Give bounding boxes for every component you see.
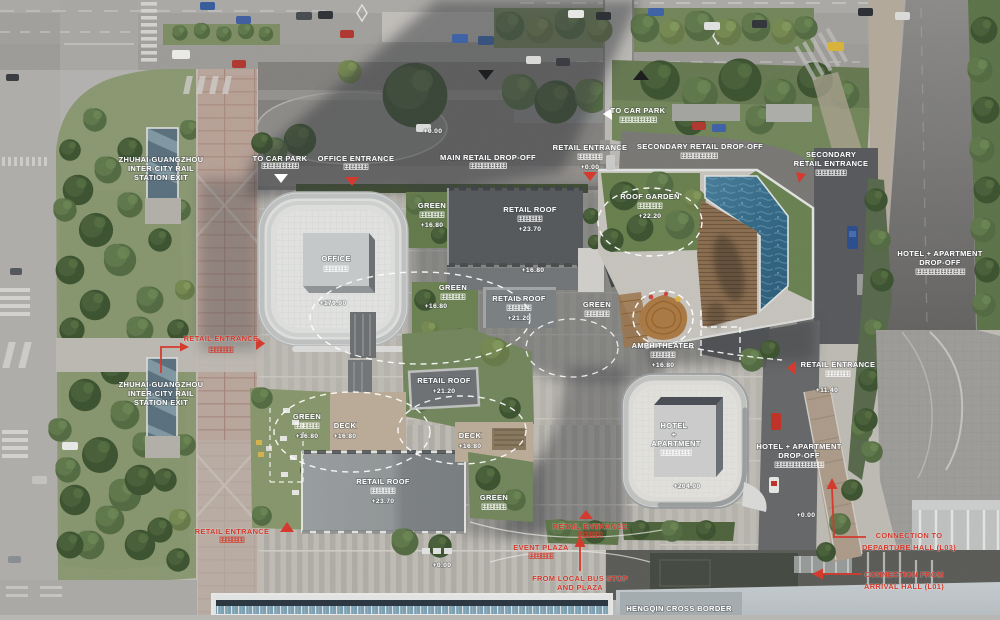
svg-text:+16.80: +16.80 xyxy=(425,303,448,310)
svg-text:RETAIL ROOF: RETAIL ROOF xyxy=(417,376,471,385)
svg-text:+11.40: +11.40 xyxy=(816,387,838,394)
svg-text:CONNECTION FROM: CONNECTION FROM xyxy=(864,570,943,579)
svg-text:TO CAR PARK: TO CAR PARK xyxy=(611,106,666,115)
svg-text:APARTMENT: APARTMENT xyxy=(651,439,700,448)
svg-text:AMPHITHEATER: AMPHITHEATER xyxy=(632,341,695,350)
svg-text:STATION EXIT: STATION EXIT xyxy=(134,173,188,182)
svg-text:HOTEL + APARTMENT: HOTEL + APARTMENT xyxy=(897,249,982,258)
svg-text:+16.80: +16.80 xyxy=(296,433,319,440)
svg-text:MAIN RETAIL DROP-OFF: MAIN RETAIL DROP-OFF xyxy=(440,153,536,162)
svg-text:+204.00: +204.00 xyxy=(674,483,701,490)
svg-text:RETAIL ENTRANCE: RETAIL ENTRANCE xyxy=(195,527,270,536)
svg-text:GREEN: GREEN xyxy=(439,283,467,292)
svg-text:+0.00: +0.00 xyxy=(424,128,443,135)
svg-text:CONNECTION TO: CONNECTION TO xyxy=(876,531,943,540)
svg-text:SECONDARY: SECONDARY xyxy=(806,150,856,159)
svg-text:GREEN: GREEN xyxy=(583,300,611,309)
svg-text:+0.00: +0.00 xyxy=(581,164,600,171)
svg-text:ARRIVAL HALL (L01): ARRIVAL HALL (L01) xyxy=(864,582,944,591)
svg-text:+16.80: +16.80 xyxy=(421,222,444,229)
svg-text:+22.20: +22.20 xyxy=(639,213,662,220)
svg-text:DROP-OFF: DROP-OFF xyxy=(919,258,961,267)
svg-text:+179.00: +179.00 xyxy=(320,300,347,307)
svg-text:ROOF GARDEN: ROOF GARDEN xyxy=(620,192,680,201)
svg-text:OFFICE ENTRANCE: OFFICE ENTRANCE xyxy=(318,154,395,163)
svg-text:+23.70: +23.70 xyxy=(372,498,395,505)
svg-text:GREEN: GREEN xyxy=(480,493,508,502)
svg-text:RETAIL ENTRANCE: RETAIL ENTRANCE xyxy=(184,334,259,343)
svg-text:OFFICE: OFFICE xyxy=(321,254,350,263)
svg-text:GREEN: GREEN xyxy=(418,201,446,210)
svg-text:+0.00: +0.00 xyxy=(433,562,452,569)
svg-text:ZHUHAI-GUANGZHOU: ZHUHAI-GUANGZHOU xyxy=(119,155,204,164)
svg-text:+21.20: +21.20 xyxy=(433,388,456,395)
svg-text:DROP-OFF: DROP-OFF xyxy=(778,451,820,460)
svg-text:HOTEL + APARTMENT: HOTEL + APARTMENT xyxy=(756,442,841,451)
svg-text:+21.20: +21.20 xyxy=(508,315,531,322)
svg-text:RETAIL ENTRANCE: RETAIL ENTRANCE xyxy=(553,522,628,531)
svg-text:RETAIL ENTRANCE: RETAIL ENTRANCE xyxy=(553,143,628,152)
svg-text:SECONDARY RETAIL DROP-OFF: SECONDARY RETAIL DROP-OFF xyxy=(637,142,763,151)
svg-text:+16.80: +16.80 xyxy=(522,267,545,274)
svg-text:EVENT PLAZA: EVENT PLAZA xyxy=(513,543,569,552)
svg-text:INTER-CITY RAIL: INTER-CITY RAIL xyxy=(128,164,194,173)
svg-text:TO CAR PARK: TO CAR PARK xyxy=(253,154,308,163)
svg-text:RETAIL ENTRANCE: RETAIL ENTRANCE xyxy=(801,360,876,369)
svg-text:+23.70: +23.70 xyxy=(519,226,542,233)
svg-text:STATION EXIT: STATION EXIT xyxy=(134,398,188,407)
svg-text:+16.80: +16.80 xyxy=(334,433,357,440)
svg-text:HOTEL: HOTEL xyxy=(661,421,688,430)
svg-text:RETAIL ROOF: RETAIL ROOF xyxy=(503,205,557,214)
svg-text:DEPARTURE HALL (L03): DEPARTURE HALL (L03) xyxy=(862,543,956,552)
svg-text:RETAIL ROOF: RETAIL ROOF xyxy=(492,294,546,303)
svg-text:+16.80: +16.80 xyxy=(459,443,482,450)
svg-text:+: + xyxy=(672,430,677,439)
svg-text:RETAIL ENTRANCE: RETAIL ENTRANCE xyxy=(794,159,869,168)
svg-text:ZHUHAI-GUANGZHOU: ZHUHAI-GUANGZHOU xyxy=(119,380,204,389)
svg-text:+0.00: +0.00 xyxy=(797,512,816,519)
svg-text:DECK: DECK xyxy=(459,431,482,440)
svg-text:DECK: DECK xyxy=(334,421,357,430)
svg-text:HENGQIN CROSS BORDER: HENGQIN CROSS BORDER xyxy=(626,604,732,613)
svg-text:AND PLAZA: AND PLAZA xyxy=(557,583,603,592)
svg-text:+16.80: +16.80 xyxy=(652,362,675,369)
svg-text:RETAIL ROOF: RETAIL ROOF xyxy=(356,477,410,486)
svg-text:GREEN: GREEN xyxy=(293,412,321,421)
svg-text:FROM LOCAL BUS STOP: FROM LOCAL BUS STOP xyxy=(532,574,628,583)
svg-text:INTER-CITY RAIL: INTER-CITY RAIL xyxy=(128,389,194,398)
